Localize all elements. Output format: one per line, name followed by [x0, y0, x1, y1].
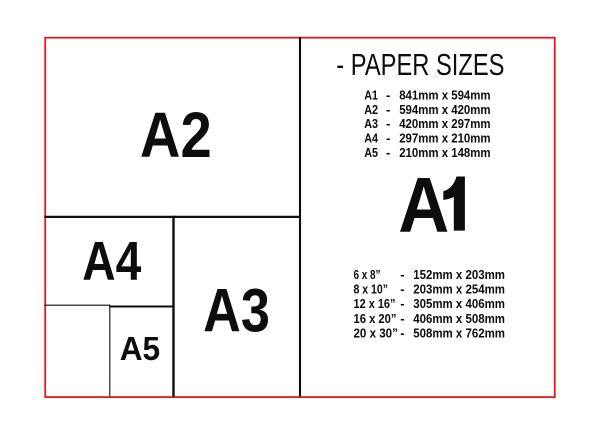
svg-text:A2: A2 [364, 102, 378, 117]
svg-text:-: - [386, 145, 390, 160]
svg-text:16 x 20”: 16 x 20” [354, 311, 397, 326]
svg-text:-: - [400, 267, 404, 282]
svg-text:210mm x 148mm: 210mm x 148mm [399, 145, 490, 160]
svg-text:-: - [386, 88, 390, 103]
svg-text:420mm x 297mm: 420mm x 297mm [399, 116, 490, 131]
svg-text:A1: A1 [364, 88, 378, 103]
svg-text:305mm x 406mm: 305mm x 406mm [413, 296, 505, 311]
svg-text:-: - [400, 296, 404, 311]
svg-text:-: - [386, 102, 390, 117]
svg-text:-: - [400, 326, 404, 341]
svg-text:A5: A5 [120, 329, 160, 367]
svg-text:203mm x 254mm: 203mm x 254mm [413, 282, 505, 297]
svg-text:20 x 30”: 20 x 30” [354, 326, 398, 341]
svg-text:-: - [386, 116, 390, 131]
svg-text:A: A [398, 161, 449, 248]
svg-text:841mm x 594mm: 841mm x 594mm [399, 88, 490, 103]
svg-text:152mm x 203mm: 152mm x 203mm [413, 267, 505, 282]
svg-text:508mm x 762mm: 508mm x 762mm [413, 326, 505, 341]
svg-text:A3: A3 [364, 116, 378, 131]
svg-text:A5: A5 [364, 145, 378, 160]
svg-text:8 x 10”: 8 x 10” [354, 282, 389, 297]
svg-text:-: - [386, 130, 390, 145]
svg-text:594mm x 420mm: 594mm x 420mm [399, 102, 490, 117]
svg-text:297mm x 210mm: 297mm x 210mm [399, 130, 490, 145]
svg-text:- PAPER SIZES: - PAPER SIZES [336, 47, 504, 82]
svg-text:A3: A3 [203, 277, 270, 346]
svg-text:A4: A4 [82, 230, 141, 291]
svg-text:A2: A2 [140, 99, 212, 171]
svg-text:-: - [400, 282, 404, 297]
svg-text:6 x 8”: 6 x 8” [354, 267, 381, 282]
svg-text:-: - [400, 311, 404, 326]
svg-text:12 x 16”: 12 x 16” [354, 296, 396, 311]
svg-text:406mm x 508mm: 406mm x 508mm [413, 311, 505, 326]
svg-text:A4: A4 [364, 130, 378, 145]
